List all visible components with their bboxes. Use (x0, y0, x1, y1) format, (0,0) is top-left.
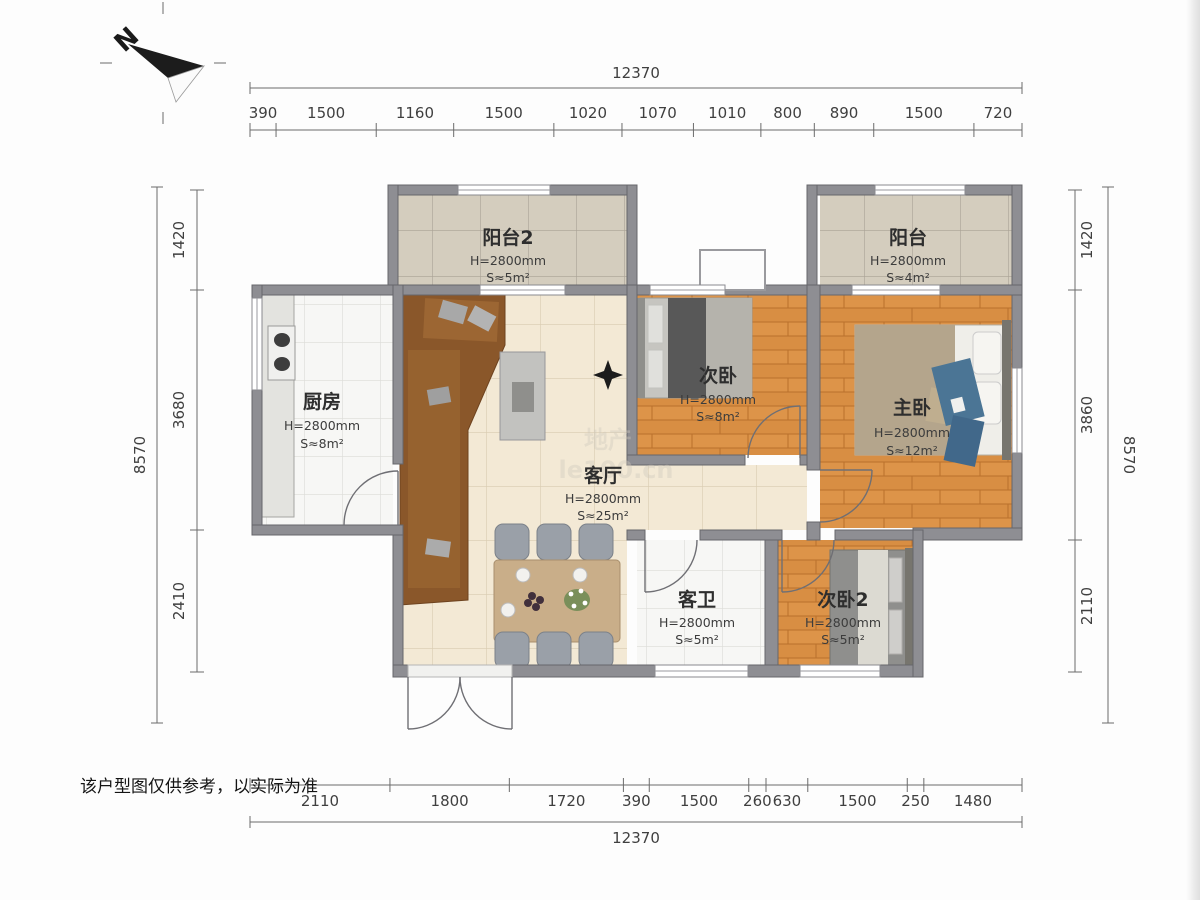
window (655, 665, 748, 677)
kitchen-counter (262, 293, 295, 517)
room-height: H=2800mm (874, 425, 950, 440)
dim-label: 1500 (905, 104, 943, 122)
dim-label: 800 (773, 104, 802, 122)
dim-label: 1070 (639, 104, 677, 122)
room-name: 客卫 (678, 588, 716, 611)
entry-threshold (408, 665, 512, 677)
entry-door-right (460, 677, 512, 729)
tv-console (500, 352, 545, 440)
room-name: 阳台 (889, 226, 927, 249)
room-area: S≈5m² (486, 270, 530, 285)
window (875, 185, 965, 195)
dim-label: 1500 (838, 792, 876, 810)
dim-label: 8570 (131, 436, 149, 474)
dim-label: 8570 (1120, 436, 1138, 474)
room-height: H=2800mm (680, 392, 756, 407)
dim-label: 260 (743, 792, 772, 810)
window (252, 298, 262, 390)
floor-plan-drawing: 地产 le100.cn 阳台2 H=2800mm S≈5m² 阳台 H=2800… (0, 0, 1200, 900)
dim-label: 1160 (396, 104, 434, 122)
dim-label: 1720 (547, 792, 585, 810)
dim-label: 12370 (612, 829, 660, 847)
entry-door-left (408, 677, 460, 729)
dim-label: 1420 (1078, 221, 1096, 259)
room-area: S≈5m² (675, 632, 719, 647)
dim-label: 3680 (170, 391, 188, 429)
room-area: S≈8m² (300, 436, 344, 451)
dim-label: 720 (984, 104, 1013, 122)
room-height: H=2800mm (470, 253, 546, 268)
watermark-line1: 地产 (584, 426, 632, 454)
dim-label: 390 (622, 792, 651, 810)
dim-label: 1480 (954, 792, 992, 810)
window (480, 285, 565, 295)
room-name: 主卧 (893, 397, 931, 419)
window (800, 665, 880, 677)
room-name: 阳台2 (482, 226, 533, 249)
edge-shade (1186, 0, 1200, 900)
room-height: H=2800mm (284, 418, 360, 433)
room-area: S≈12m² (886, 443, 938, 458)
dim-label: 1420 (170, 221, 188, 259)
ac-platform (700, 250, 765, 290)
room-height: H=2800mm (870, 253, 946, 268)
dim-label: 1500 (307, 104, 345, 122)
dim-label: 390 (249, 104, 278, 122)
room-name: 次卧2 (817, 588, 868, 611)
room-area: S≈25m² (577, 508, 629, 523)
room-height: H=2800mm (659, 615, 735, 630)
dining-chairs-top (495, 524, 613, 560)
dim-label: 1500 (680, 792, 718, 810)
dim-label: 890 (830, 104, 859, 122)
floor-plan-page: 地产 le100.cn 阳台2 H=2800mm S≈5m² 阳台 H=2800… (0, 0, 1200, 900)
room-area: S≈4m² (886, 270, 930, 285)
dining-table (494, 560, 620, 642)
dim-label: 1500 (485, 104, 523, 122)
window (1012, 368, 1022, 453)
dim-label: 250 (901, 792, 930, 810)
room-height: H=2800mm (565, 491, 641, 506)
dim-label: 2110 (1078, 587, 1096, 625)
room-name: 厨房 (303, 390, 341, 413)
dim-label: 1800 (431, 792, 469, 810)
dining-set (494, 524, 620, 668)
dim-label: 630 (773, 792, 802, 810)
room-height: H=2800mm (805, 615, 881, 630)
room-name: 次卧 (699, 364, 737, 387)
sofa-pillow (425, 538, 451, 557)
dim-label: 12370 (612, 64, 660, 82)
disclaimer-text: 该户型图仅供参考，以实际为准 (80, 772, 318, 797)
room-name: 客厅 (584, 464, 622, 487)
dining-chairs-bottom (495, 632, 613, 668)
dim-label: 1010 (708, 104, 746, 122)
window (650, 285, 725, 295)
room-area: S≈8m² (696, 409, 740, 424)
dim-label: 2410 (170, 582, 188, 620)
window (852, 285, 940, 295)
dim-label: 1020 (569, 104, 607, 122)
dim-label: 3860 (1078, 396, 1096, 434)
window (458, 185, 550, 195)
room-area: S≈5m² (821, 632, 865, 647)
north-compass: N (100, 2, 226, 124)
